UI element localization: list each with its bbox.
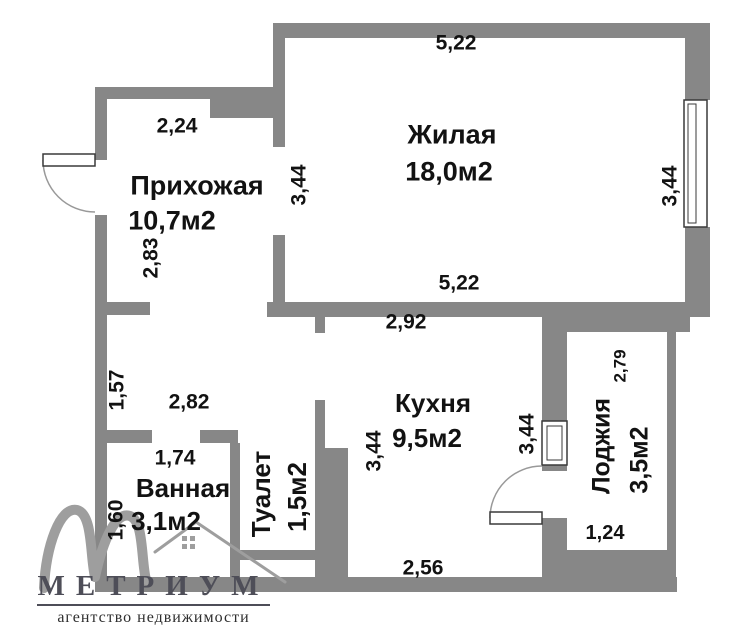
dim-kitchen-bottom: 2,56 — [403, 558, 444, 579]
room-label-bathroom: Ванная — [136, 475, 230, 501]
wall-kitchen-loggia-lower — [542, 518, 567, 592]
dim-kitchen-right: 3,44 — [517, 414, 538, 455]
area-label-kitchen: 9,5м2 — [392, 425, 462, 451]
entrance-door-leaf — [43, 154, 95, 166]
area-label-bathroom: 3,1м2 — [131, 508, 201, 534]
dim-living-top: 5,22 — [436, 33, 477, 54]
area-label-living: 18,0м2 — [405, 159, 493, 186]
dim-living-bottom: 5,22 — [439, 273, 480, 294]
dim-bathroom-top: 1,74 — [155, 448, 196, 469]
logo-brand-name: МЕТРИУМ — [37, 570, 270, 603]
wall-kitchen-loggia-upper — [542, 317, 567, 421]
dim-living-right: 3,44 — [660, 166, 681, 207]
balcony-door-leaf — [490, 512, 542, 524]
dim-living-left: 3,44 — [289, 165, 310, 206]
dim-hall-width: 2,82 — [169, 392, 210, 413]
dim-hall-height: 1,57 — [107, 370, 128, 411]
logo-house-window-dot — [190, 536, 195, 541]
wall-divider-upper — [273, 23, 285, 147]
balcony-door-arc — [490, 466, 542, 518]
area-label-hallway: 10,7м2 — [128, 208, 216, 235]
wall-loggia-right — [667, 332, 676, 550]
floor-plan: 5,22 Жилая 18,0м2 5,22 3,44 3,44 2,24 Пр… — [0, 0, 750, 631]
living-room-window-frame — [688, 104, 696, 223]
logo-rule — [37, 604, 270, 606]
entrance-door-arc — [43, 160, 95, 212]
room-label-loggia: Лоджия — [590, 398, 615, 494]
wall-mid-left — [95, 302, 150, 315]
wall-hallway-top — [95, 87, 210, 99]
logo-house-window-dot — [190, 544, 195, 549]
dim-hallway-left: 2,83 — [141, 238, 162, 279]
wall-left-upper — [95, 87, 107, 160]
balcony-window-frame — [547, 426, 562, 460]
logo-house-window-dot — [182, 536, 187, 541]
wall-living-top — [273, 23, 710, 38]
logo-tagline: агентство недвижимости — [37, 609, 270, 627]
wall-hall-kitchen — [315, 400, 325, 448]
wall-kitchen-stub — [315, 317, 325, 333]
dim-kitchen-left: 3,44 — [364, 431, 385, 472]
dim-loggia-bottom: 1,24 — [586, 523, 625, 543]
wall-bathroom-top-b — [200, 430, 238, 443]
dim-hallway-top: 2,24 — [157, 116, 198, 137]
wall-right-upper — [685, 38, 710, 100]
wall-kitchen-loggia-stub — [542, 465, 567, 471]
room-label-hallway: Прихожая — [130, 173, 263, 200]
area-label-loggia: 3,5м2 — [628, 426, 653, 493]
wall-duct-column — [315, 448, 348, 580]
dim-loggia-side: 2,79 — [612, 349, 629, 382]
room-label-living: Жилая — [408, 122, 497, 149]
room-label-kitchen: Кухня — [395, 390, 471, 416]
wall-bathroom-top-a — [107, 430, 152, 443]
wall-loggia-bottom — [567, 550, 676, 592]
room-label-toilet: Туалет — [248, 451, 274, 538]
wall-divider-lower — [273, 235, 285, 302]
wall-hallway-top-chunk — [210, 87, 273, 118]
dim-bathroom-left: 1,60 — [106, 500, 127, 541]
logo-house-window-dot — [182, 544, 187, 549]
dim-kitchen-top: 2,92 — [386, 312, 427, 333]
area-label-toilet: 1,5м2 — [284, 462, 310, 532]
